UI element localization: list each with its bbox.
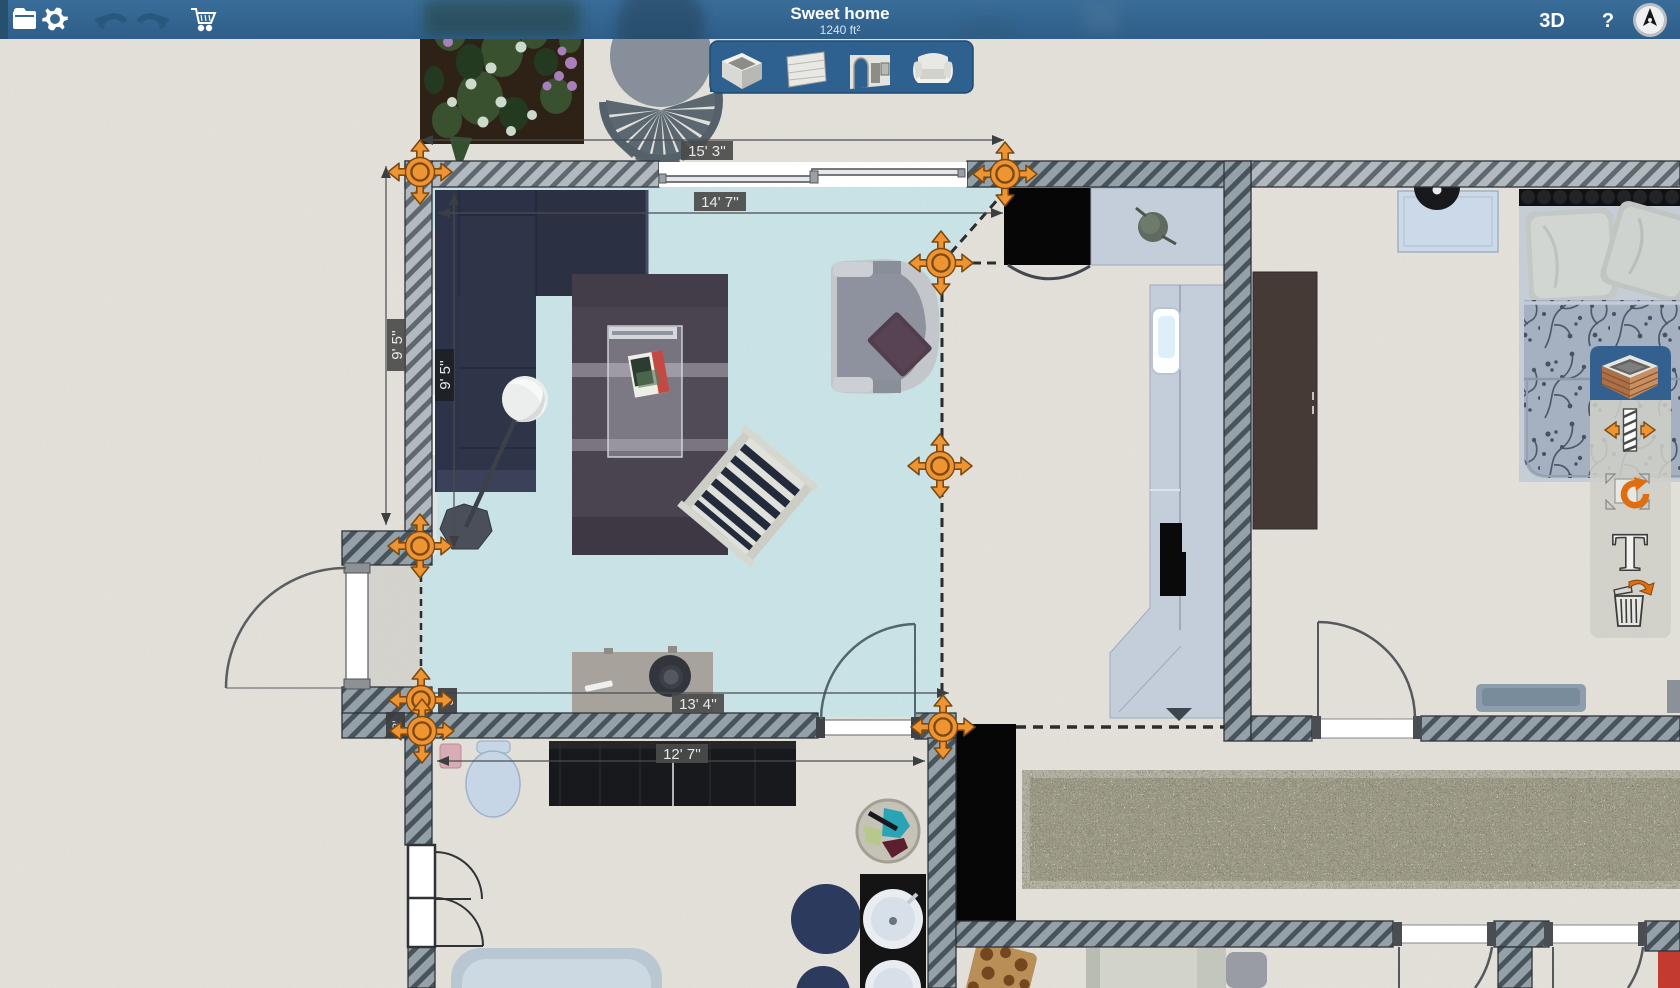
svg-text:1240 ft²: 1240 ft² xyxy=(820,23,861,37)
svg-text:9' 5'': 9' 5'' xyxy=(437,360,454,390)
svg-text:12' 7'': 12' 7'' xyxy=(663,746,701,763)
svg-text:?: ? xyxy=(1602,10,1614,32)
svg-text:3D: 3D xyxy=(1539,10,1565,32)
svg-text:9' 5'': 9' 5'' xyxy=(389,330,406,360)
svg-text:Sweet home: Sweet home xyxy=(790,4,889,23)
svg-text:13' 4'': 13' 4'' xyxy=(679,696,717,713)
svg-text:14' 7'': 14' 7'' xyxy=(701,194,739,211)
svg-text:T: T xyxy=(1612,522,1648,582)
svg-text:15' 3'': 15' 3'' xyxy=(688,143,726,160)
